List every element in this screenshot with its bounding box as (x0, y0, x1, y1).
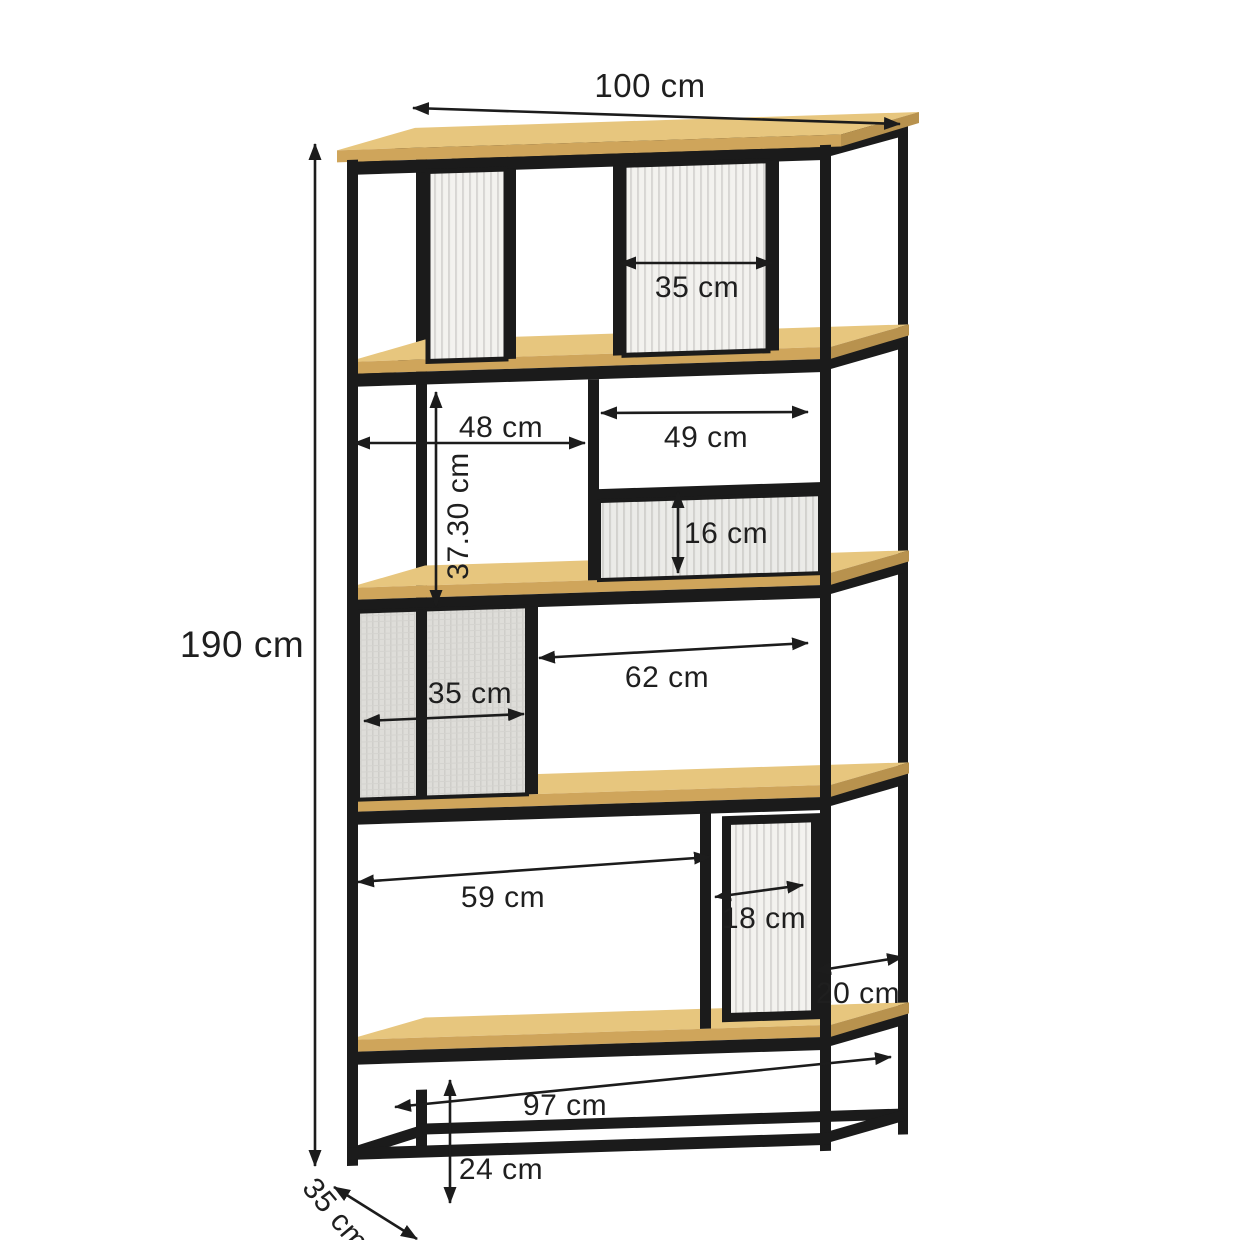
dim-label-row3-opening-width: 62 cm (625, 661, 709, 695)
dim-label-row2-height: 37.30 cm (442, 452, 476, 579)
dim-label-base-height: 24 cm (459, 1153, 543, 1187)
dim-label-total-width: 100 cm (594, 67, 705, 105)
row3-divider-post (527, 606, 538, 794)
dim-label-row2-right-width: 49 cm (664, 421, 748, 455)
dim-label-base-width: 97 cm (523, 1089, 607, 1123)
back-left-leg (416, 1089, 427, 1149)
dim-arrow-row4-opening-width (358, 857, 710, 882)
row4-divider-post (700, 813, 711, 1029)
dim-arrow-row3-opening-width (539, 643, 808, 658)
dim-label-door-glass-width: 18 cm (722, 902, 806, 936)
dim-label-row2-left-width: 48 cm (459, 411, 543, 445)
dim-arrow-base-width (395, 1057, 891, 1107)
dim-label-mesh-panel-width: 35 cm (428, 677, 512, 711)
dimension-diagram: 100 cm 35 cm 48 cm 49 cm 37.30 cm 16 cm … (0, 0, 1240, 1240)
dim-label-small-panel-height: 16 cm (684, 517, 768, 551)
shelf-unit-illustration (0, 0, 1240, 1240)
ribbed-glass-panel-left (428, 169, 506, 361)
front-left-post (347, 160, 358, 1166)
dim-label-top-opening-width: 35 cm (655, 271, 739, 305)
ribbed-glass-panel-middle (624, 161, 768, 356)
dim-label-side-gap-width: 20 cm (816, 977, 900, 1011)
dim-label-total-height: 190 cm (180, 624, 304, 666)
dim-arrow-row2-right-width (601, 412, 808, 413)
row1-panels (428, 160, 779, 361)
dim-label-row4-opening-width: 59 cm (461, 881, 545, 915)
